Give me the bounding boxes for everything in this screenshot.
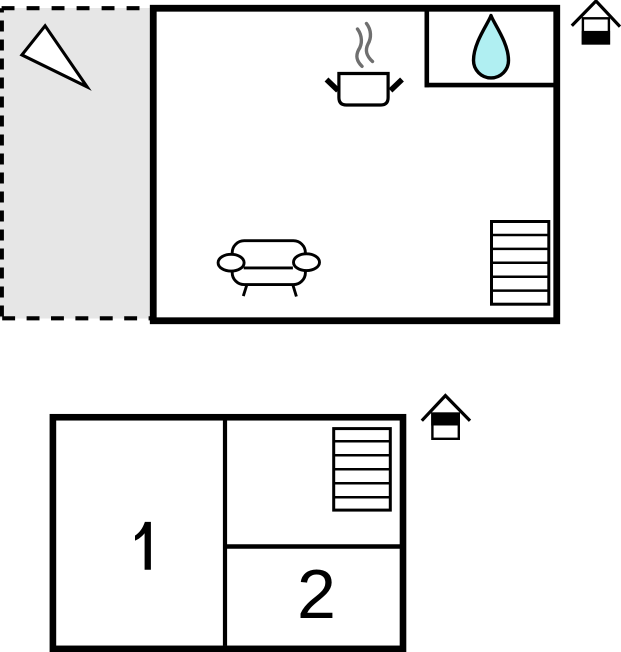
svg-text:2: 2 bbox=[297, 555, 336, 633]
